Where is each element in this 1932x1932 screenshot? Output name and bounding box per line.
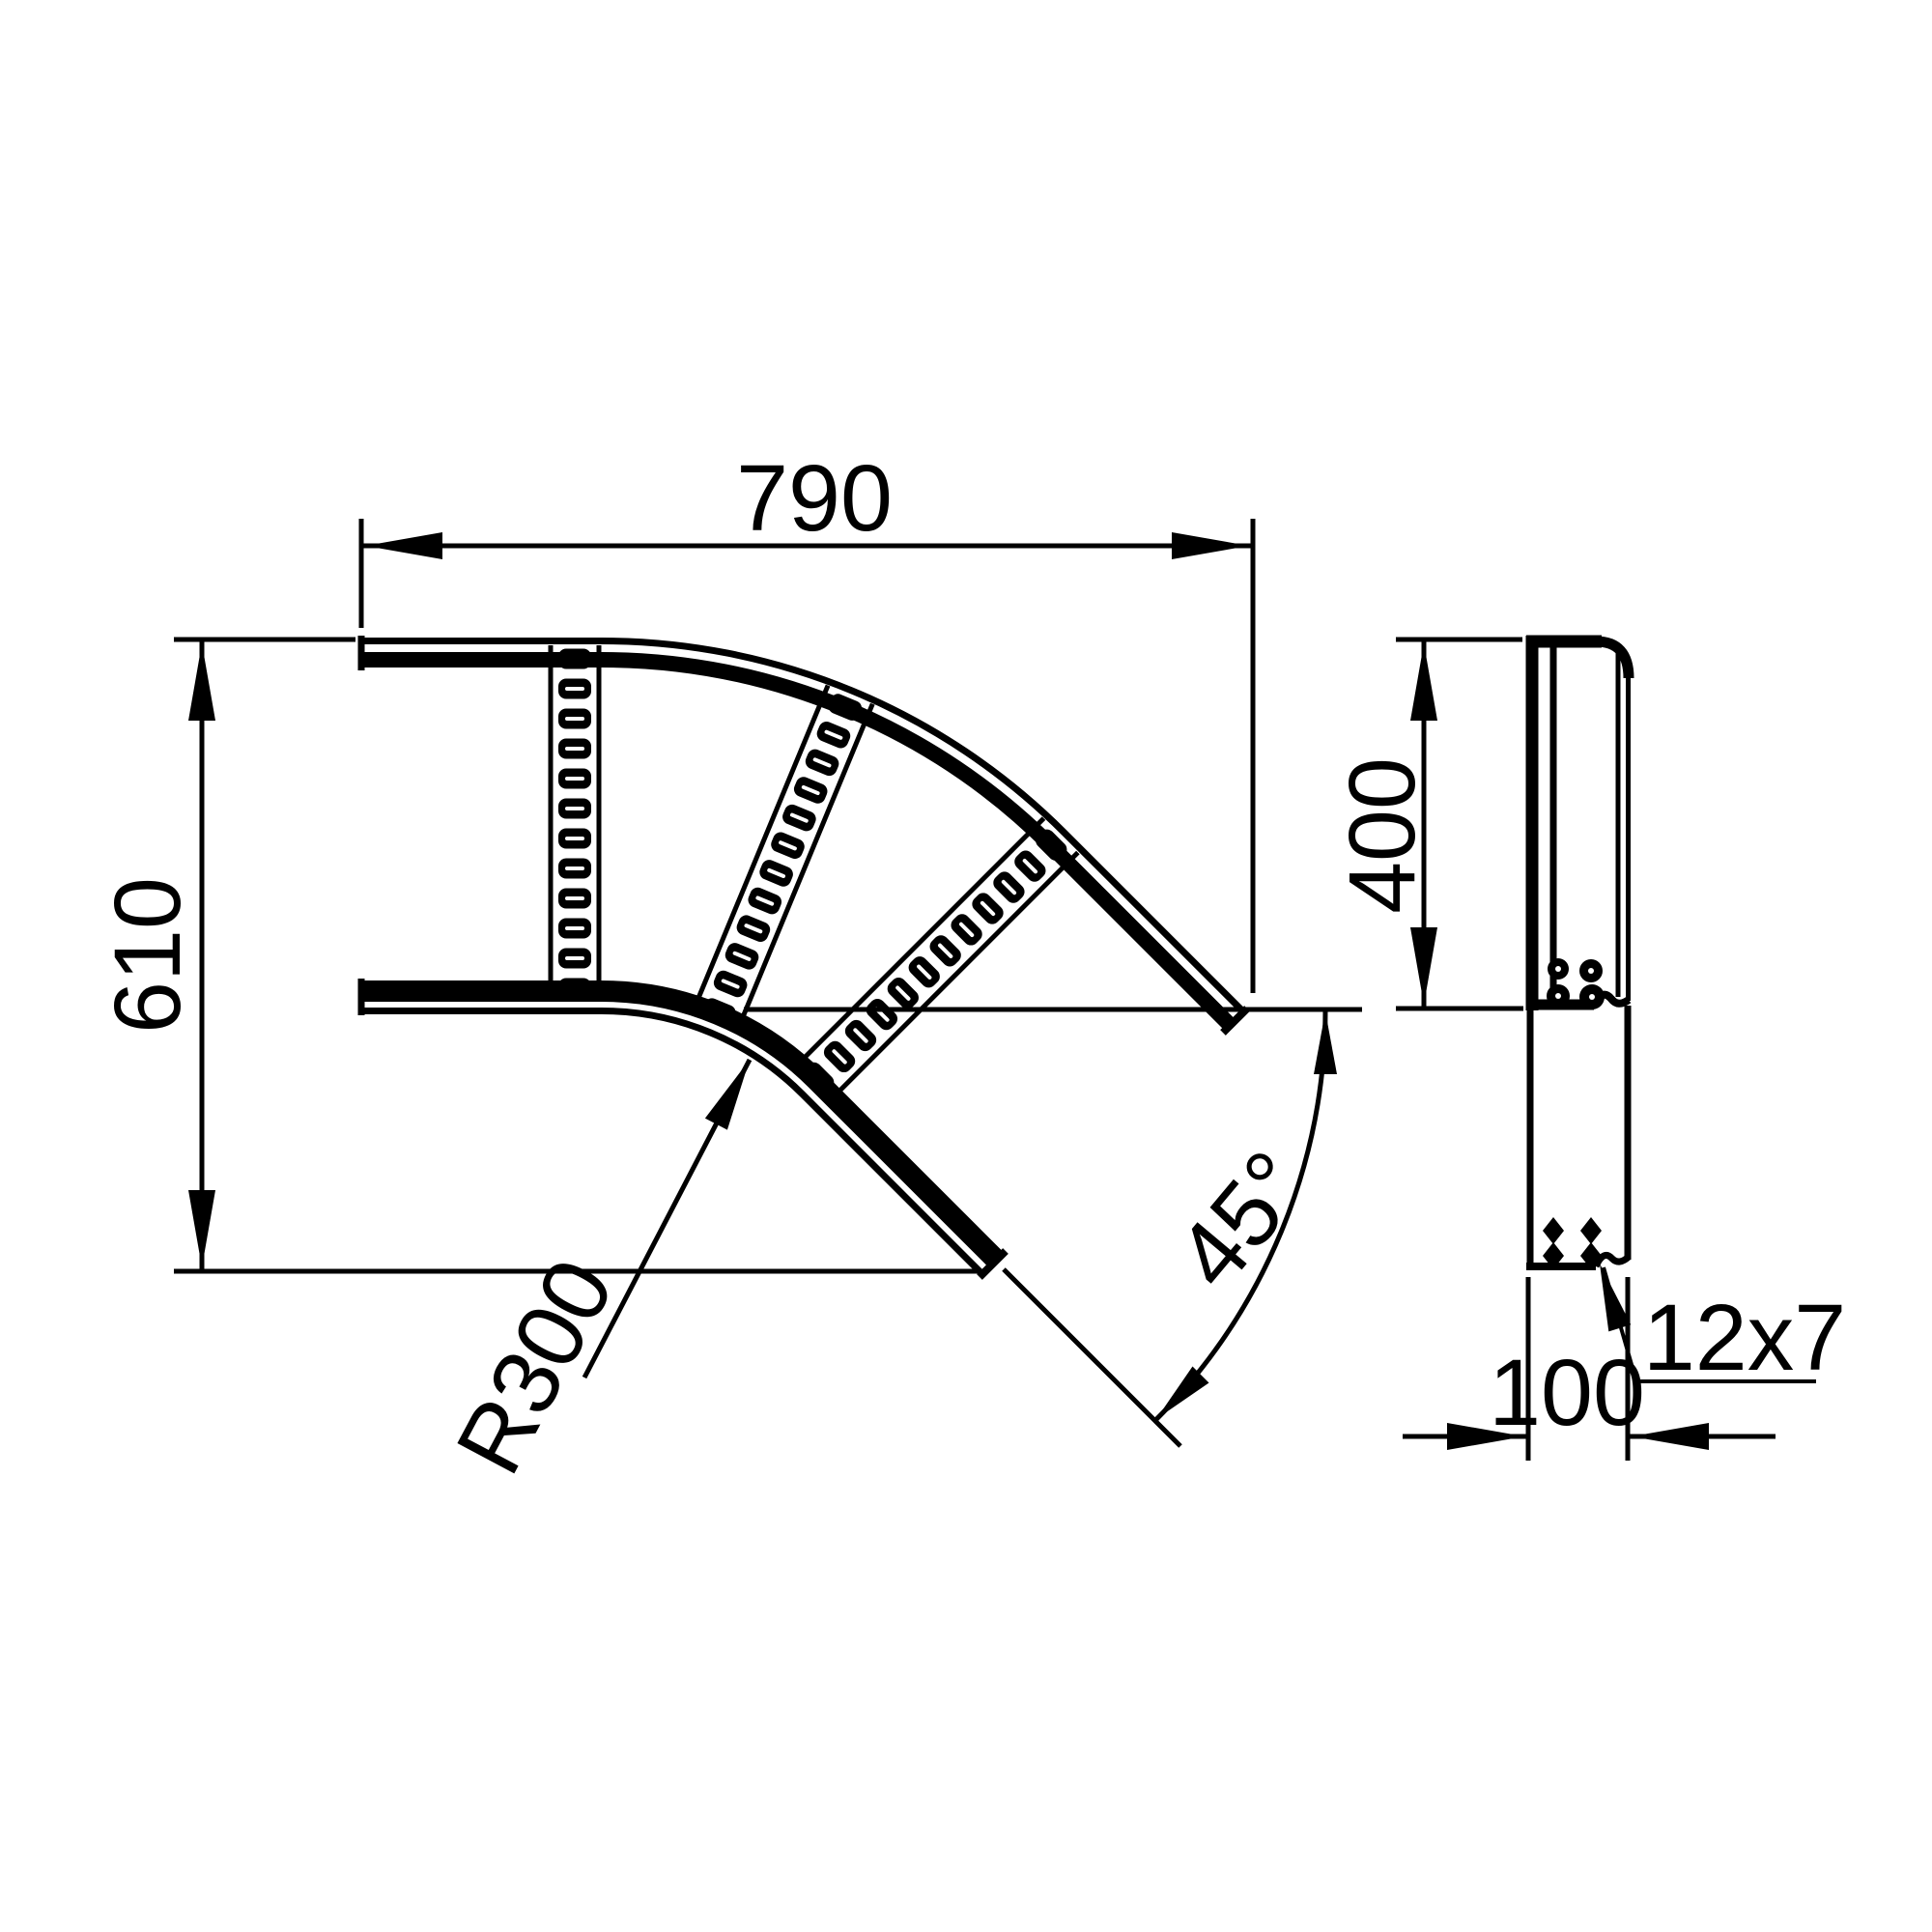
dimension-radius-r300: R300	[436, 1060, 750, 1490]
arrowhead-up	[188, 643, 215, 721]
profile-bottom-break-squiggle	[1596, 1255, 1629, 1266]
profile-upper-segment	[1526, 636, 1629, 1010]
arrowhead-down	[1410, 927, 1437, 1005]
rung-2	[693, 686, 872, 1031]
arrowhead-left	[365, 532, 442, 559]
plan-view: 790 610 R300 45°	[95, 445, 1362, 1490]
dim-slot-label: 12x7	[1643, 1285, 1846, 1390]
dim-height-label: 610	[95, 877, 200, 1034]
dim-length-label: 400	[1329, 757, 1435, 914]
slot-holes-lower	[1543, 1217, 1602, 1269]
dim-angle-label: 45°	[1155, 1131, 1327, 1307]
arrowhead-down	[1156, 1367, 1209, 1420]
outer-rail	[361, 636, 1247, 1033]
drawing-sheet: 790 610 R300 45°	[0, 0, 1932, 1932]
dim-profile-label: 100	[1489, 1340, 1645, 1445]
arrowhead-down	[188, 1190, 215, 1267]
dim-width-label: 790	[736, 445, 893, 551]
arrowhead-right	[1172, 532, 1249, 559]
side-view: 400 100 12x7	[1329, 636, 1846, 1461]
rung-1	[551, 645, 599, 999]
dimension-angle-45: 45°	[744, 1009, 1362, 1446]
arrowhead	[705, 1060, 750, 1130]
profile-top-curl	[1596, 641, 1629, 678]
arrowhead-up	[1314, 1011, 1337, 1074]
arrowhead-up	[1410, 643, 1437, 721]
dimension-length-400: 400	[1329, 639, 1523, 1009]
dim-radius-label: R300	[436, 1242, 634, 1490]
profile-lower-segment	[1526, 1006, 1629, 1270]
technical-drawing-canvas: 790 610 R300 45°	[0, 0, 1932, 1932]
rung-3	[794, 818, 1078, 1102]
